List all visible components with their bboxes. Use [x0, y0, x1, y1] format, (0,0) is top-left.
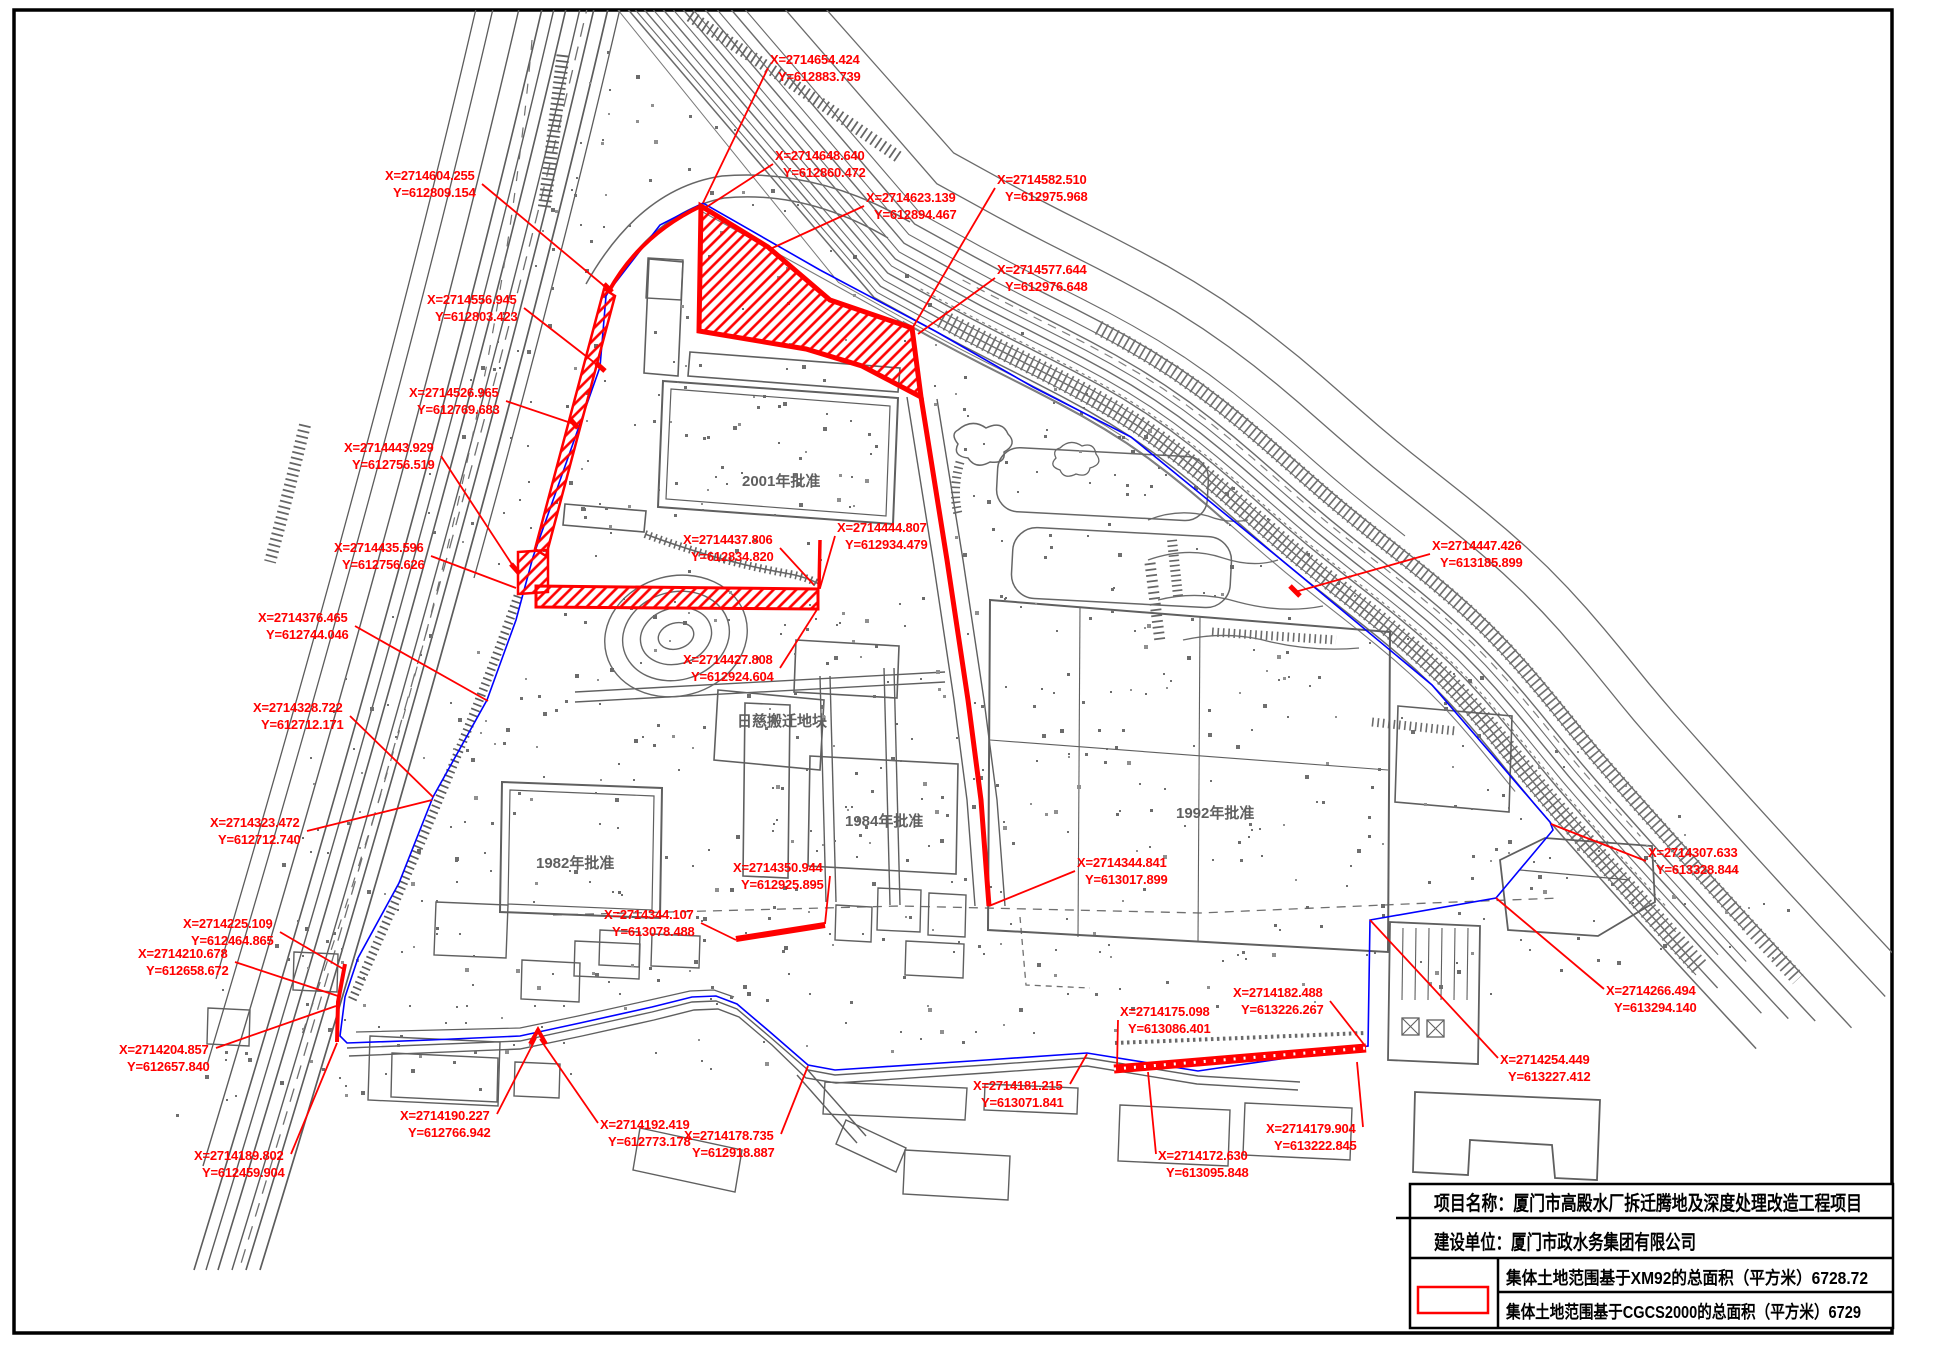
svg-text:2001年批准: 2001年批准: [742, 472, 820, 490]
svg-text:1984年批准: 1984年批准: [845, 812, 923, 830]
svg-text:建设单位：厦门市政水务集团有限公司: 建设单位：厦门市政水务集团有限公司: [1434, 1230, 1696, 1254]
svg-text:1992年批准: 1992年批准: [1176, 804, 1254, 822]
svg-text:项目名称：厦门市高殿水厂拆迁腾地及深度处理改造工程项目: 项目名称：厦门市高殿水厂拆迁腾地及深度处理改造工程项目: [1434, 1191, 1862, 1215]
svg-text:集体土地范围基于CGCS2000的总面积（平方米）6729: 集体土地范围基于CGCS2000的总面积（平方米）6729: [1505, 1302, 1861, 1322]
svg-text:1982年批准: 1982年批准: [536, 854, 614, 872]
svg-text:日慈搬迁地块: 日慈搬迁地块: [737, 712, 828, 730]
svg-text:集体土地范围基于XM92的总面积（平方米）6728.72: 集体土地范围基于XM92的总面积（平方米）6728.72: [1505, 1268, 1868, 1288]
